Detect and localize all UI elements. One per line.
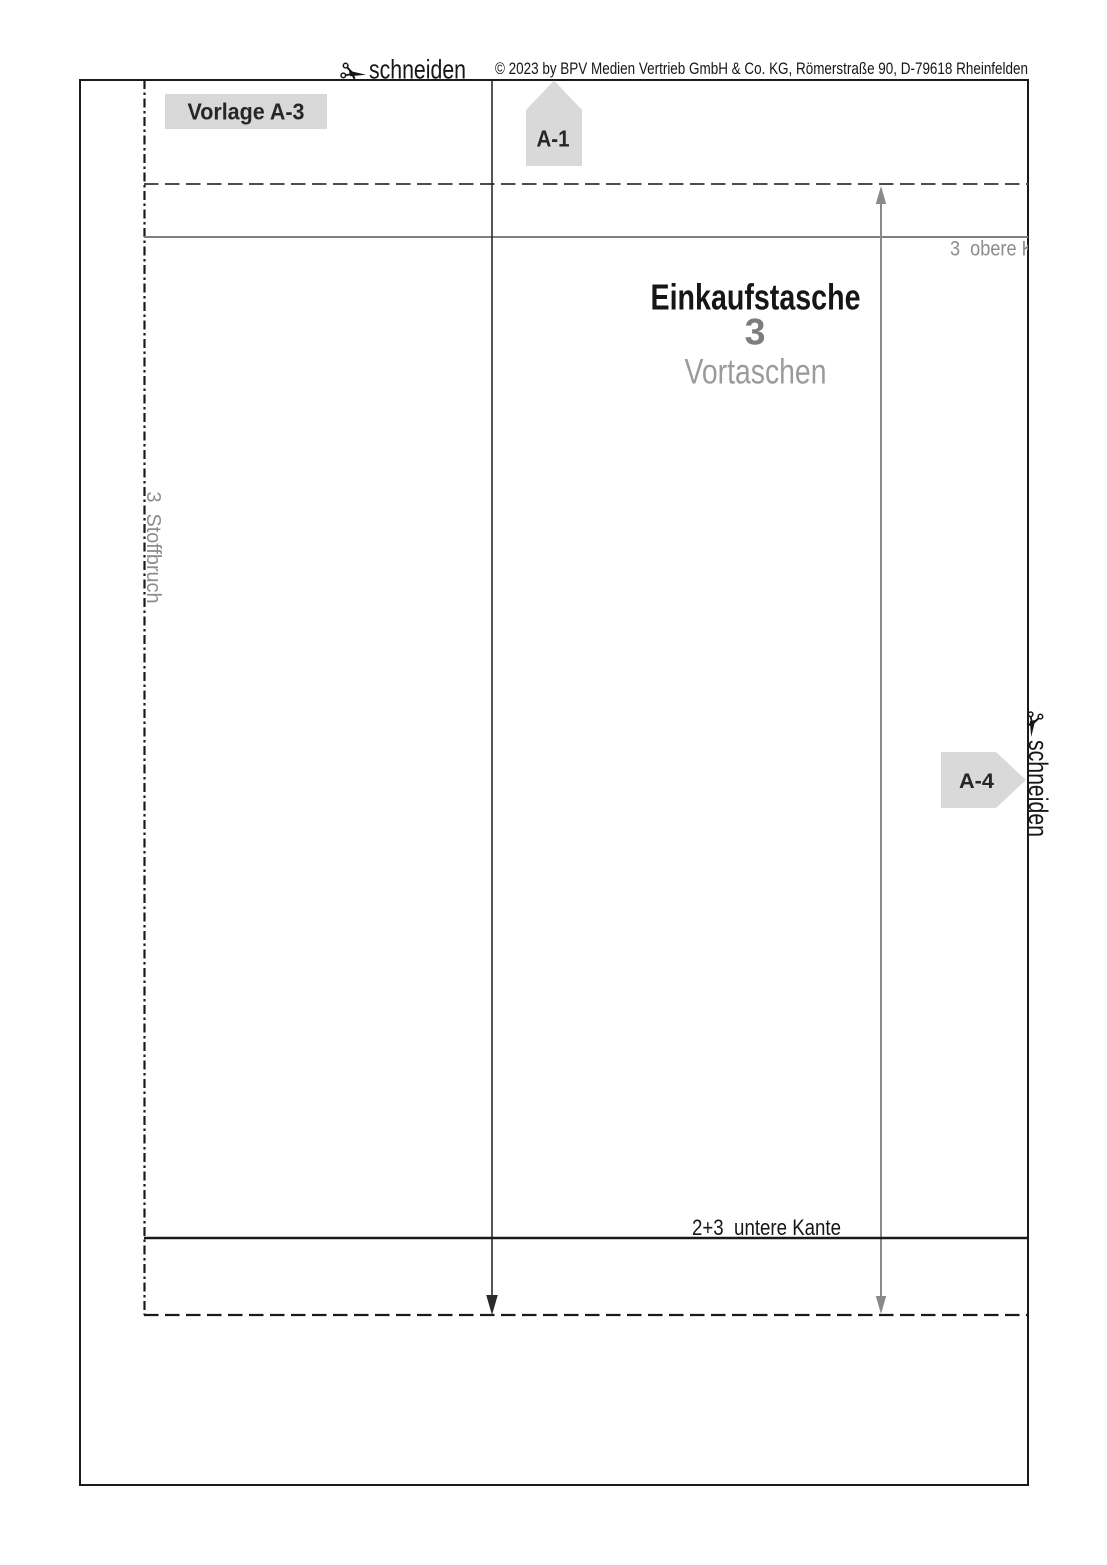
svg-text:2+3 untere Kante: 2+3 untere Kante — [692, 1215, 841, 1240]
svg-text:Vortaschen: Vortaschen — [685, 352, 827, 392]
svg-text:© 2023 by BPV Medien Vertrieb: © 2023 by BPV Medien Vertrieb GmbH & Co.… — [495, 60, 1028, 78]
svg-text:Vorlage A-3: Vorlage A-3 — [188, 99, 305, 125]
svg-text:3: 3 — [745, 311, 766, 353]
svg-text:3 obere Kante: 3 obere Kante — [950, 237, 1069, 261]
svg-text:3 Stoffbruch: 3 Stoffbruch — [142, 492, 165, 604]
svg-text:A-4: A-4 — [959, 769, 994, 793]
svg-text:schneiden: schneiden — [1023, 740, 1053, 837]
svg-text:A-1: A-1 — [537, 126, 570, 152]
